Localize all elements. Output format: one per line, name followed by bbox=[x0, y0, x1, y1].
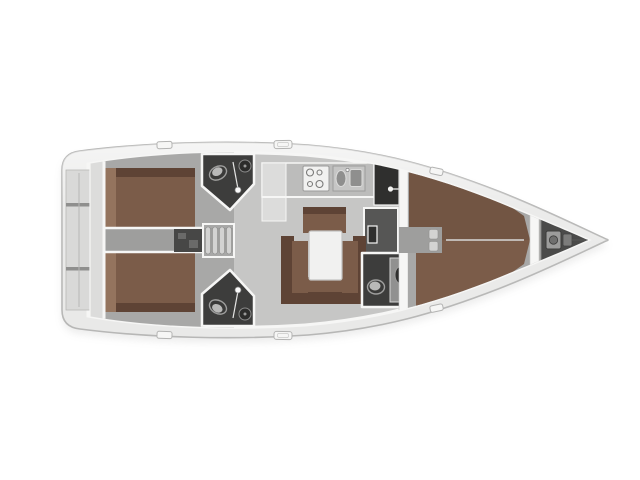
yacht-floor-plan bbox=[0, 0, 640, 480]
aft-berth-port bbox=[105, 168, 195, 228]
salon-bench bbox=[303, 207, 346, 233]
cabinet-handle bbox=[388, 186, 393, 191]
door-opening bbox=[399, 227, 408, 253]
bow-bulkhead bbox=[530, 210, 539, 270]
fridge-cabinet bbox=[374, 163, 399, 205]
deck-hatch bbox=[157, 141, 172, 149]
nav-area bbox=[364, 208, 398, 254]
deck-hatch bbox=[274, 331, 292, 339]
shower-fitting bbox=[235, 187, 241, 193]
deck-hatch bbox=[157, 331, 172, 339]
interior bbox=[90, 150, 591, 330]
stern-platform bbox=[66, 170, 91, 310]
aft-bulkhead bbox=[90, 158, 104, 322]
main-bulkhead bbox=[399, 162, 408, 318]
deck-hatch bbox=[274, 140, 292, 148]
stove bbox=[303, 166, 329, 191]
galley-sinks bbox=[333, 166, 365, 191]
toilet bbox=[368, 280, 385, 294]
salon-table bbox=[309, 231, 342, 280]
aft-berth-starboard bbox=[105, 252, 195, 312]
berth-walkway bbox=[408, 227, 442, 253]
faucet bbox=[346, 168, 349, 171]
shower-fitting bbox=[235, 287, 241, 293]
